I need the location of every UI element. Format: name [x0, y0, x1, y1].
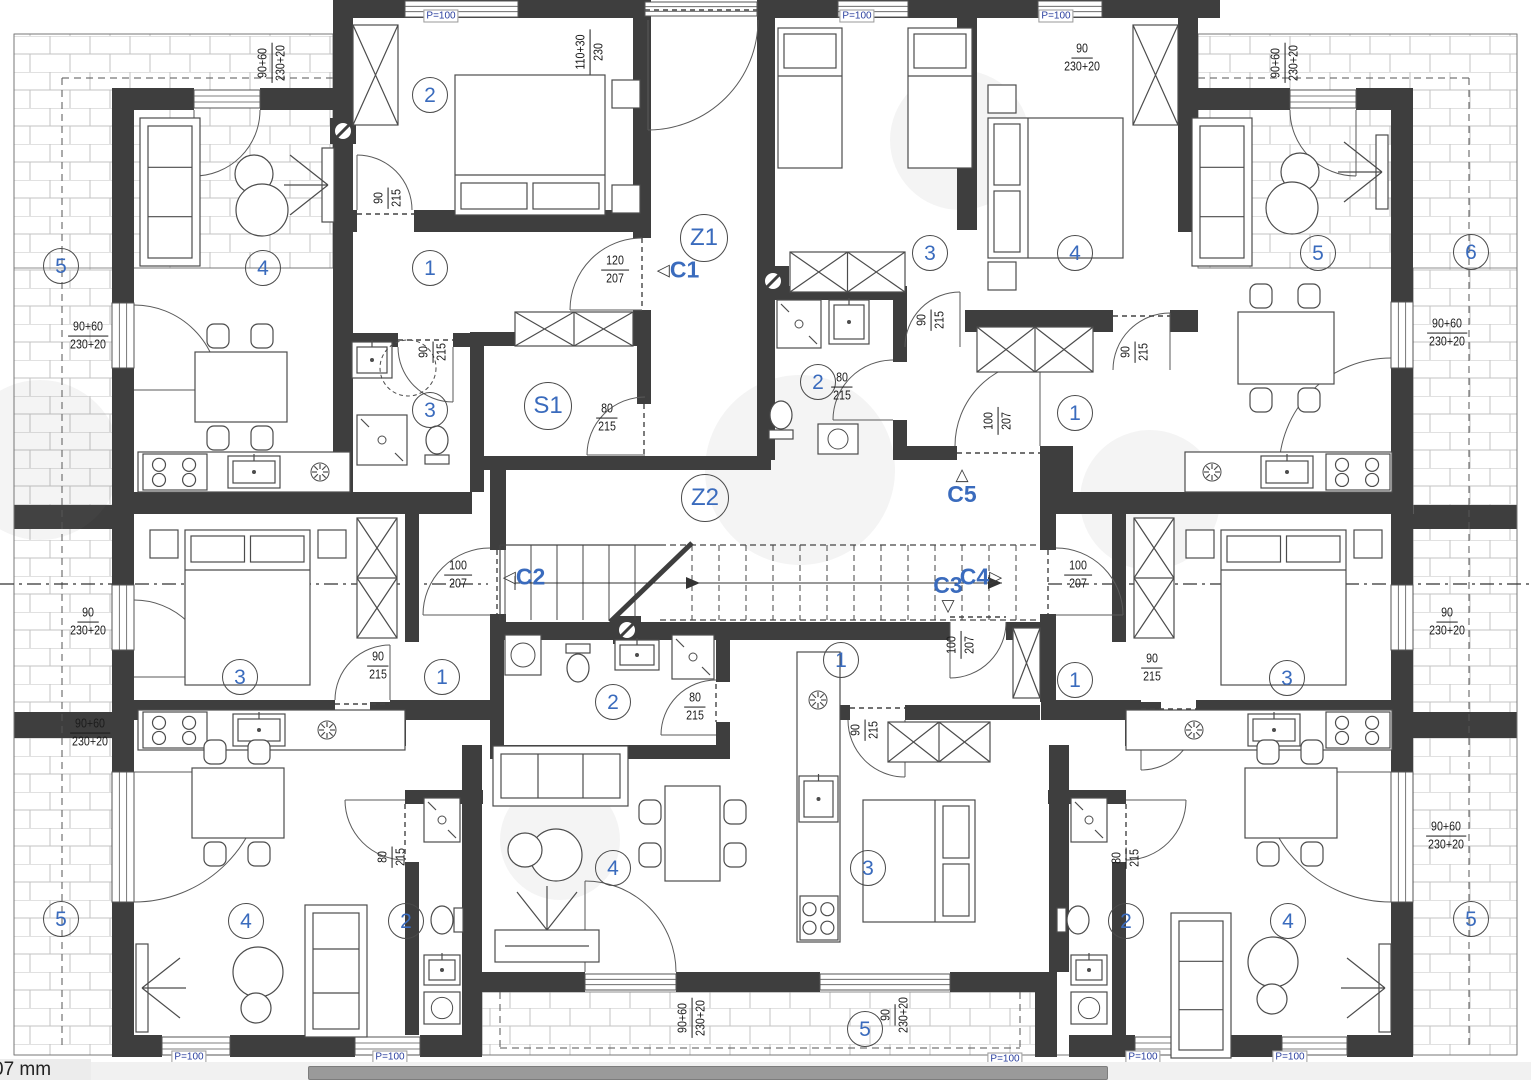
floor-plan-drawing [0, 0, 1531, 1063]
horizontal-scrollbar-thumb[interactable] [308, 1066, 1108, 1080]
floor-plan-viewer: { "plan": { "title": "Apartment building… [0, 0, 1531, 1080]
status-measurement-text: 07 mm [0, 1059, 91, 1080]
